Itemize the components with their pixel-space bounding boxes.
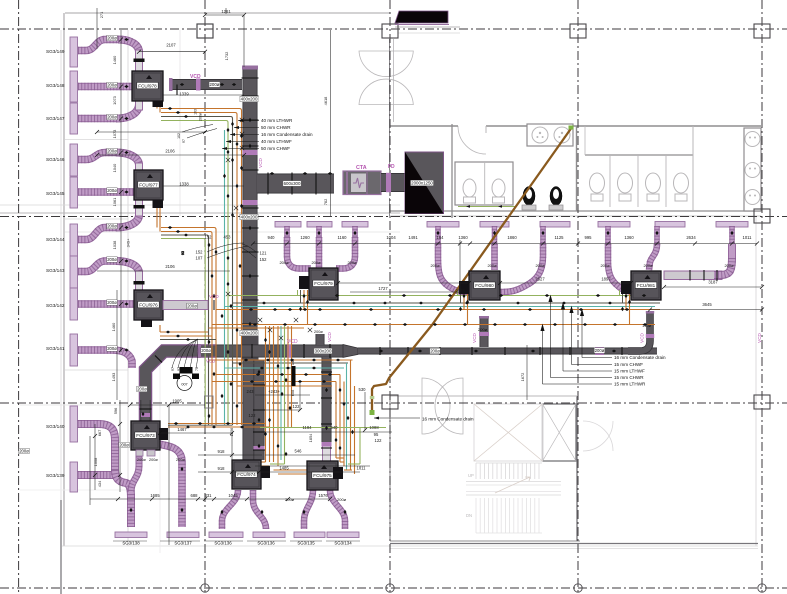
svg-text:93: 93 <box>181 251 185 255</box>
svg-text:331: 331 <box>205 493 213 498</box>
svg-text:608: 608 <box>290 390 295 397</box>
svg-text:200ø: 200ø <box>187 304 197 309</box>
svg-text:1045: 1045 <box>228 493 238 498</box>
svg-text:SG3/140: SG3/140 <box>46 424 65 429</box>
svg-text:3645: 3645 <box>702 302 712 307</box>
svg-text:1038: 1038 <box>112 241 117 250</box>
svg-text:1261: 1261 <box>221 9 231 14</box>
svg-text:271: 271 <box>99 12 104 19</box>
svg-text:107: 107 <box>196 256 204 261</box>
svg-text:2107: 2107 <box>166 43 176 48</box>
svg-text:SG3/134: SG3/134 <box>334 541 352 546</box>
svg-text:200ø: 200ø <box>107 224 117 229</box>
svg-text:1493: 1493 <box>111 373 116 382</box>
svg-text:15 mm LTHWF: 15 mm LTHWF <box>614 369 645 374</box>
svg-text:200ø: 200ø <box>600 263 610 268</box>
svg-text:940: 940 <box>268 235 276 240</box>
svg-text:SG3/149: SG3/149 <box>46 49 65 54</box>
svg-text:1854: 1854 <box>308 433 313 442</box>
svg-text:140ø: 140ø <box>642 323 652 328</box>
svg-text:SG3/147: SG3/147 <box>46 116 65 121</box>
svg-text:1732: 1732 <box>224 52 229 61</box>
svg-text:200ø: 200ø <box>199 112 203 121</box>
svg-text:1184: 1184 <box>302 425 312 430</box>
svg-text:200ø: 200ø <box>487 263 497 268</box>
svg-text:1339: 1339 <box>179 92 189 97</box>
svg-text:SG3/143: SG3/143 <box>46 268 65 273</box>
svg-text:102: 102 <box>177 133 181 139</box>
svg-text:VCD: VCD <box>472 332 477 342</box>
svg-text:164: 164 <box>437 235 445 240</box>
svg-text:200ø: 200ø <box>430 263 440 268</box>
svg-text:VCD: VCD <box>327 331 332 341</box>
svg-text:1160: 1160 <box>337 235 347 240</box>
svg-text:600x300: 600x300 <box>284 181 301 186</box>
svg-text:200ø: 200ø <box>107 149 117 154</box>
svg-text:434: 434 <box>97 480 102 487</box>
svg-text:50 mm CHWR: 50 mm CHWR <box>261 125 291 130</box>
svg-text:540: 540 <box>331 425 339 430</box>
svg-text:97: 97 <box>171 367 175 371</box>
svg-text:530: 530 <box>359 387 367 392</box>
svg-text:FCU/981: FCU/981 <box>637 283 656 288</box>
svg-text:75: 75 <box>195 367 199 371</box>
svg-text:2106: 2106 <box>165 264 175 269</box>
svg-text:1073: 1073 <box>112 96 117 105</box>
svg-text:SG3/137: SG3/137 <box>174 541 192 546</box>
svg-text:1008: 1008 <box>93 458 98 467</box>
svg-text:SG3/138: SG3/138 <box>122 541 140 546</box>
svg-text:200ø: 200ø <box>643 263 653 268</box>
svg-text:FCU/980: FCU/980 <box>475 283 494 288</box>
svg-text:FCU/975: FCU/975 <box>313 473 332 478</box>
svg-text:FD: FD <box>388 164 395 170</box>
svg-text:1338: 1338 <box>179 182 189 187</box>
svg-text:995: 995 <box>585 235 593 240</box>
svg-text:1011: 1011 <box>742 235 752 240</box>
svg-text:667: 667 <box>97 430 102 437</box>
svg-text:200ø: 200ø <box>107 115 117 120</box>
svg-text:1467: 1467 <box>177 427 187 432</box>
svg-text:1491: 1491 <box>408 235 418 240</box>
svg-text:152: 152 <box>205 235 213 240</box>
svg-text:349+: 349+ <box>126 238 131 247</box>
svg-text:1040: 1040 <box>112 163 117 172</box>
svg-text:1360: 1360 <box>458 235 468 240</box>
svg-text:SG3/142: SG3/142 <box>46 303 65 308</box>
svg-text:FCU/978: FCU/978 <box>138 83 157 88</box>
svg-text:1576: 1576 <box>318 493 328 498</box>
svg-text:200ø: 200ø <box>107 257 117 262</box>
svg-text:93: 93 <box>183 367 187 371</box>
svg-text:918: 918 <box>218 466 226 471</box>
svg-text:16 mm Condensate drain: 16 mm Condensate drain <box>261 132 313 137</box>
svg-text:200ø: 200ø <box>285 497 295 502</box>
svg-text:200ø: 200ø <box>107 188 117 193</box>
svg-text:1860: 1860 <box>507 235 517 240</box>
svg-text:VCD: VCD <box>206 359 215 364</box>
svg-text:200ø: 200ø <box>137 458 146 462</box>
svg-text:+243+: +243+ <box>268 389 280 394</box>
svg-text:200ø: 200ø <box>209 82 219 87</box>
svg-text:SG3/139: SG3/139 <box>46 473 65 478</box>
svg-text:97: 97 <box>182 139 186 143</box>
svg-text:200ø: 200ø <box>535 263 545 268</box>
svg-text:400x200: 400x200 <box>241 97 258 102</box>
svg-text:782: 782 <box>323 199 328 206</box>
svg-text:453: 453 <box>224 235 232 240</box>
svg-text:200ø: 200ø <box>149 458 158 462</box>
svg-text:FCU/973: FCU/973 <box>136 433 155 438</box>
svg-text:SG3/144: SG3/144 <box>46 237 65 242</box>
svg-text:1260: 1260 <box>300 235 310 240</box>
svg-text:1672: 1672 <box>520 373 525 382</box>
svg-text:400x200: 400x200 <box>241 215 258 220</box>
svg-text:122: 122 <box>293 404 301 409</box>
svg-text:97: 97 <box>177 367 181 371</box>
svg-text:200ø: 200ø <box>119 443 129 448</box>
svg-text:143: 143 <box>291 359 295 365</box>
svg-text:50 mm CHWF: 50 mm CHWF <box>261 146 290 151</box>
svg-text:200ø: 200ø <box>478 327 488 332</box>
svg-text:122: 122 <box>375 438 383 443</box>
svg-text:688: 688 <box>191 493 199 498</box>
svg-text:FCU/974: FCU/974 <box>237 472 256 477</box>
svg-text:007: 007 <box>181 383 187 387</box>
svg-text:2000x1250: 2000x1250 <box>411 181 433 186</box>
svg-text:40 mm LTHWR: 40 mm LTHWR <box>261 118 293 123</box>
svg-text:CTA: CTA <box>356 165 367 171</box>
svg-text:4618: 4618 <box>323 97 328 106</box>
svg-text:SG3/148: SG3/148 <box>46 83 65 88</box>
svg-text:200ø: 200ø <box>279 260 289 265</box>
svg-text:1727: 1727 <box>378 286 388 291</box>
svg-text:VCD: VCD <box>209 294 219 299</box>
svg-text:DN: DN <box>466 513 472 518</box>
svg-text:200ø: 200ø <box>724 263 734 268</box>
svg-text:VCD: VCD <box>640 332 645 342</box>
svg-text:1685: 1685 <box>150 493 160 498</box>
svg-text:1905: 1905 <box>172 399 182 404</box>
svg-text:1811: 1811 <box>356 466 366 471</box>
svg-text:2106: 2106 <box>165 149 175 154</box>
svg-text:16 mm Condensate drain: 16 mm Condensate drain <box>422 417 474 422</box>
svg-text:152: 152 <box>196 250 204 255</box>
svg-text:1856: 1856 <box>229 428 234 437</box>
svg-text:15 mm CHWF: 15 mm CHWF <box>614 362 643 367</box>
svg-text:1004: 1004 <box>386 235 396 240</box>
svg-text:200ø: 200ø <box>107 83 117 88</box>
svg-text:SG3/145: SG3/145 <box>46 191 65 196</box>
svg-text:200ø: 200ø <box>201 348 211 353</box>
svg-text:VCD: VCD <box>757 332 762 342</box>
svg-text:2578: 2578 <box>455 289 465 294</box>
svg-text:FCU/977: FCU/977 <box>139 182 158 187</box>
svg-text:122: 122 <box>249 413 257 418</box>
svg-text:200ø: 200ø <box>311 260 321 265</box>
svg-text:400x200: 400x200 <box>241 331 258 336</box>
svg-text:SG3/146: SG3/146 <box>46 157 65 162</box>
svg-text:1485: 1485 <box>279 466 289 471</box>
svg-text:SG3/141: SG3/141 <box>46 346 65 351</box>
svg-text:SG3/135: SG3/135 <box>297 541 315 546</box>
svg-text:1073: 1073 <box>112 130 117 139</box>
svg-text:200ø: 200ø <box>595 348 605 353</box>
svg-text:546: 546 <box>295 449 303 454</box>
svg-text:2634: 2634 <box>686 235 696 240</box>
svg-text:VCD: VCD <box>287 339 298 345</box>
svg-text:VCD: VCD <box>258 157 263 167</box>
svg-text:15 mm LTHWR: 15 mm LTHWR <box>614 382 646 387</box>
svg-text:200ø: 200ø <box>107 300 117 305</box>
svg-text:1360: 1360 <box>624 235 634 240</box>
svg-text:243: 243 <box>247 389 255 394</box>
svg-text:200ø: 200ø <box>314 330 323 334</box>
svg-text:95: 95 <box>374 432 379 437</box>
svg-text:UP: UP <box>468 473 474 478</box>
svg-text:1088: 1088 <box>369 425 379 430</box>
svg-text:193: 193 <box>194 109 198 115</box>
svg-text:FCU/979: FCU/979 <box>314 281 333 286</box>
svg-text:200ø: 200ø <box>19 449 29 454</box>
svg-text:300x200: 300x200 <box>315 349 332 354</box>
svg-text:SG3/136: SG3/136 <box>214 541 232 546</box>
svg-text:918: 918 <box>218 449 226 454</box>
svg-text:VCD: VCD <box>190 74 201 80</box>
svg-text:596: 596 <box>113 408 118 415</box>
svg-text:200ø: 200ø <box>430 349 440 354</box>
svg-text:1460: 1460 <box>112 55 117 64</box>
svg-text:1125: 1125 <box>554 235 564 240</box>
svg-text:2527: 2527 <box>535 277 545 282</box>
svg-text:15 mm CHWR: 15 mm CHWR <box>614 375 644 380</box>
svg-text:200ø: 200ø <box>137 387 147 392</box>
svg-text:1061: 1061 <box>112 198 117 207</box>
svg-text:40 mm LTHWF: 40 mm LTHWF <box>261 139 292 144</box>
svg-text:200ø: 200ø <box>107 36 117 41</box>
svg-text:16 mm Condensate drain: 16 mm Condensate drain <box>614 355 666 360</box>
svg-text:85: 85 <box>189 367 193 371</box>
svg-text:FCU/976: FCU/976 <box>139 302 158 307</box>
svg-text:121: 121 <box>260 251 268 256</box>
svg-text:SG3/136: SG3/136 <box>257 541 275 546</box>
svg-text:200ø: 200ø <box>107 346 117 351</box>
svg-text:1897: 1897 <box>601 277 611 282</box>
svg-text:1460: 1460 <box>111 322 116 331</box>
svg-text:200ø: 200ø <box>347 260 357 265</box>
svg-text:200ø: 200ø <box>337 497 347 502</box>
svg-text:3187: 3187 <box>708 280 718 285</box>
svg-text:200ø: 200ø <box>176 458 185 462</box>
svg-text:152: 152 <box>260 257 268 262</box>
